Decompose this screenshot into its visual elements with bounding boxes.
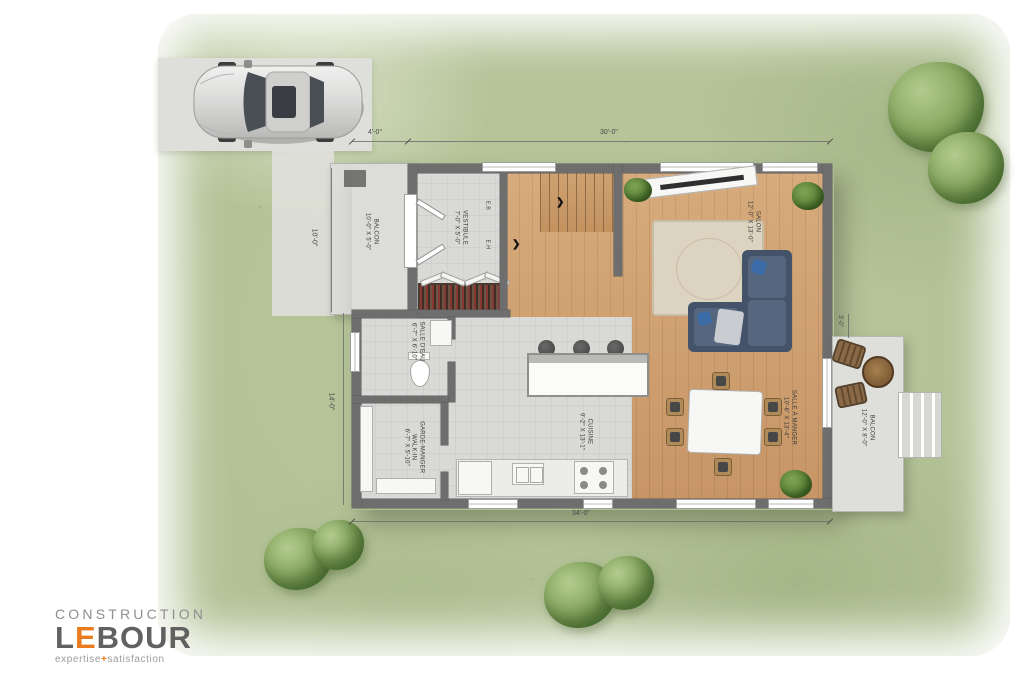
patio-door (822, 358, 832, 428)
dimension-line (343, 313, 344, 505)
company-logo: CONSTRUCTION LEBOUR expertise+satisfacti… (55, 606, 275, 665)
dimension-side-lower: 14'-0" (327, 393, 334, 411)
closet-bifold-door (420, 272, 464, 282)
closet-clothes (418, 283, 506, 312)
burner (580, 481, 588, 489)
stairs (540, 172, 618, 232)
floor-plan-rendering: BALCON 10'-0" X 5'-0" ❯ ❯ E.B E.H (0, 0, 1030, 692)
window (768, 499, 814, 509)
burner (599, 481, 607, 489)
wall (823, 164, 832, 508)
wall (441, 403, 448, 445)
car (190, 60, 370, 148)
dimension-line (352, 521, 830, 522)
dimension-front-width: 30'-0" (600, 129, 618, 136)
window (468, 499, 518, 509)
stair-arrow-icon: ❯ (512, 240, 520, 250)
dining-chair (714, 458, 732, 476)
dimension-line (848, 314, 849, 338)
tv (660, 175, 744, 190)
window (482, 162, 556, 172)
dimension-front-offset: 4'-0" (368, 129, 382, 136)
balcony-steps (898, 392, 942, 458)
dimension-side-upper: 10'-0" (310, 229, 317, 247)
room-label-balcon-right: BALCON 12'-0" X 8'-0" (860, 383, 875, 473)
wall (352, 396, 448, 403)
room-label-garde-manger: GARDE-MANGER WALK-IN 6'-7" X 5'-10" (402, 402, 425, 492)
window (762, 162, 818, 172)
concrete-walkway (272, 150, 334, 316)
bathroom-vanity (430, 320, 452, 346)
sink-basin (530, 467, 543, 483)
entry-opening (404, 194, 417, 268)
room-label-salle-a-manger: SALLE À MANGER 10'-6" X 13'-4" (782, 373, 797, 463)
dining-table (687, 389, 763, 456)
wall (614, 164, 622, 276)
room-label-salle-eau: SALLE D'EAU 6'-7" X 6'-10" (410, 297, 425, 387)
rug-medallion (676, 238, 742, 300)
plant (624, 178, 652, 202)
window (583, 499, 613, 509)
sink-basin (516, 467, 529, 483)
dimension-balcony-side: 3'-0" (837, 315, 843, 327)
dimension-line (331, 168, 332, 312)
wall (418, 310, 510, 317)
dimension-rear-width: 34'-0" (572, 510, 590, 517)
stair-arrow-icon: ❯ (556, 198, 564, 208)
window (350, 332, 360, 372)
room-label-salon: SALON 12'-0" X 13'-0" (746, 177, 761, 267)
refrigerator (458, 461, 492, 495)
dimension-line (352, 141, 830, 142)
dining-chair (712, 372, 730, 390)
window (676, 499, 756, 509)
logo-line-lebour: LEBOUR (55, 622, 275, 654)
logo-orange-e: E (75, 620, 97, 655)
room-label-vestibule: VESTIBULE 7'-0" X 5'-0" (453, 183, 468, 273)
wall (500, 164, 507, 314)
logo-tagline: expertise+satisfaction (55, 654, 275, 665)
room-label-cuisine: CUISINE 9'-2" X 13'-1" (578, 387, 593, 477)
dining-chair (666, 428, 684, 446)
pantry-shelf (360, 406, 373, 492)
dining-chair (764, 428, 782, 446)
kitchen-sink (512, 463, 544, 485)
plant (780, 470, 812, 498)
wall (448, 362, 455, 402)
dining-chair (666, 398, 684, 416)
dining-chair (764, 398, 782, 416)
wall (441, 472, 448, 500)
plant (792, 182, 824, 210)
throw-blanket (714, 308, 744, 345)
island-overhang (529, 355, 647, 363)
sofa-cushion (748, 300, 786, 346)
burner (599, 467, 607, 475)
throw-pillow (697, 311, 712, 326)
